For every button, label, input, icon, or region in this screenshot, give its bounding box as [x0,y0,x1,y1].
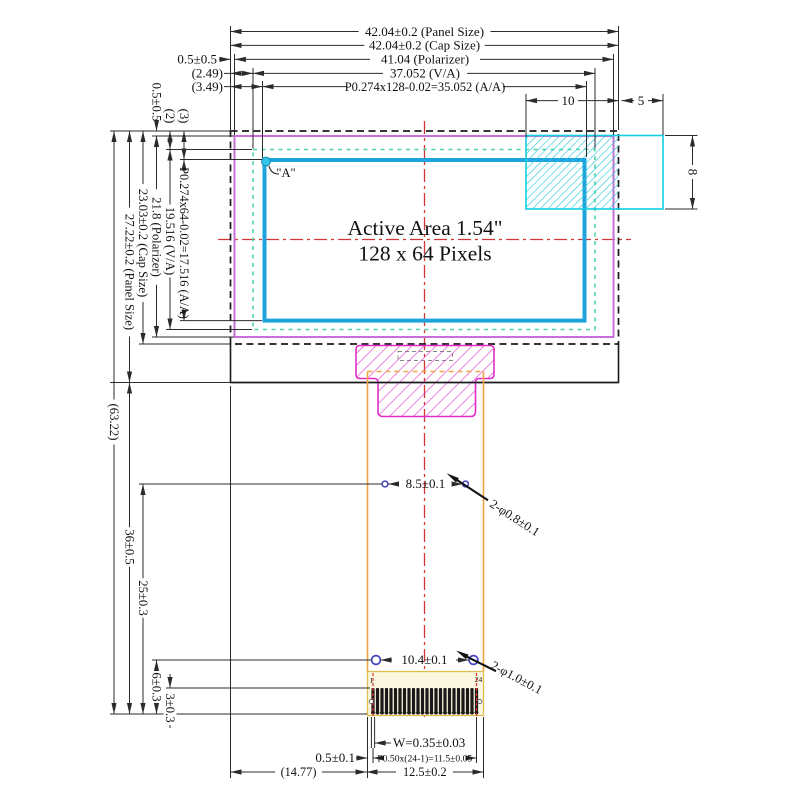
svg-text:P0.274x64-0.02=17.516 (A/A): P0.274x64-0.02=17.516 (A/A) [177,167,191,319]
svg-text:(14.77): (14.77) [281,765,317,779]
svg-text:12.5±0.2: 12.5±0.2 [403,765,447,779]
svg-text:(3.49): (3.49) [192,79,223,94]
svg-text:19.516 (V/A): 19.516 (V/A) [163,207,177,275]
svg-text:0.5±0.1: 0.5±0.1 [315,750,355,765]
svg-text:"A": "A" [276,166,295,180]
svg-text:25±0.3: 25±0.3 [136,580,150,616]
svg-text:8.5±0.1: 8.5±0.1 [406,476,446,491]
svg-text:W=0.35±0.03: W=0.35±0.03 [393,735,465,750]
svg-text:3±0.3: 3±0.3 [163,693,177,722]
svg-text:Active Area 1.54": Active Area 1.54" [347,216,502,240]
svg-text:21.8 (Polarizer): 21.8 (Polarizer) [149,197,163,277]
svg-text:(63.22): (63.22) [107,404,121,441]
svg-text:23.03±0.2 (Cap Size): 23.03±0.2 (Cap Size) [136,189,150,297]
svg-text:P0.50x(24-1)=11.5±0.05: P0.50x(24-1)=11.5±0.05 [377,754,472,765]
svg-text:27.22±0.2 (Panel Size): 27.22±0.2 (Panel Size) [122,214,136,330]
svg-text:(3): (3) [177,109,191,124]
svg-text:41.04 (Polarizer): 41.04 (Polarizer) [381,52,469,67]
svg-text:10: 10 [562,93,575,108]
svg-text:36±0.5: 36±0.5 [122,529,136,565]
svg-text:0.5±0.5: 0.5±0.5 [149,83,163,122]
svg-text:42.04±0.2 (Cap Size): 42.04±0.2 (Cap Size) [369,38,480,53]
svg-text:10.4±0.1: 10.4±0.1 [401,652,447,667]
svg-text:5: 5 [638,93,645,108]
svg-text:42.04±0.2 (Panel Size): 42.04±0.2 (Panel Size) [365,24,484,39]
svg-text:P0.274x128-0.02=35.052 (A/A): P0.274x128-0.02=35.052 (A/A) [345,80,506,94]
svg-text:(2): (2) [163,109,177,124]
svg-text:37.052 (V/A): 37.052 (V/A) [390,66,460,81]
svg-text:128 x 64 Pixels: 128 x 64 Pixels [358,242,491,266]
svg-text:8: 8 [685,169,700,176]
svg-text:0.5±0.5: 0.5±0.5 [177,52,217,67]
svg-text:6±0.3: 6±0.3 [149,672,163,701]
